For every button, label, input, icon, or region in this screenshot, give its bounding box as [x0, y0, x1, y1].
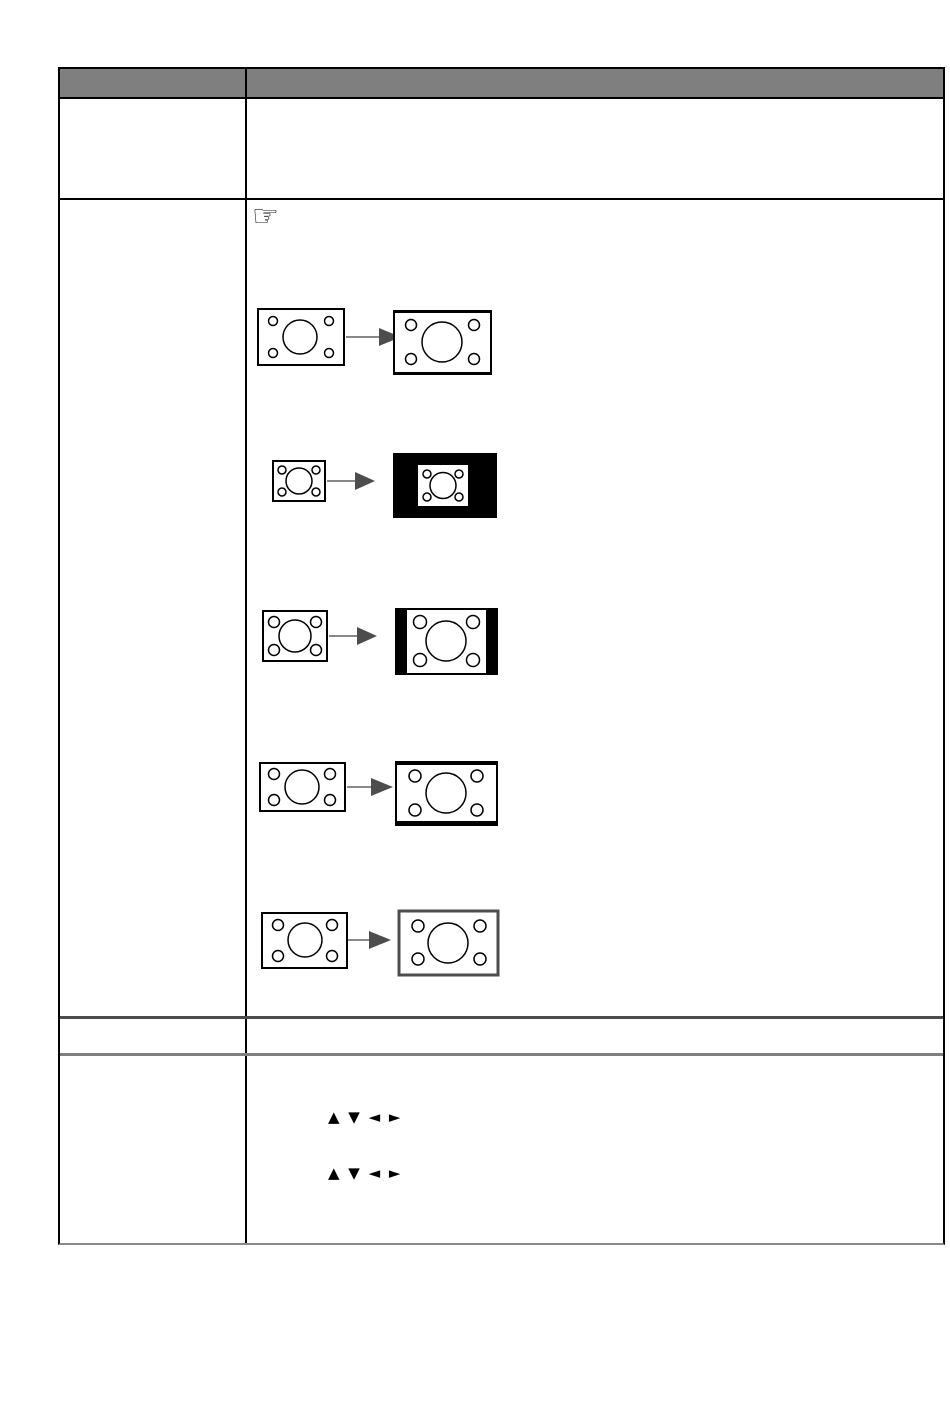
- source-screen: [262, 913, 347, 968]
- source-screen: [260, 763, 345, 811]
- direction-keys-icons-line1: ▲ ▼ ◄ ►: [328, 1108, 402, 1126]
- aspect-diagram-enlarge-letterbox: [255, 301, 495, 379]
- result-screen: [393, 310, 492, 375]
- row2-label-cell: [60, 200, 247, 1016]
- table-row-spacer: [60, 1016, 943, 1053]
- table-row: [60, 97, 943, 198]
- row3-label-cell: [60, 1019, 247, 1053]
- row4-description-cell: ▲ ▼ ◄ ► ▲ ▼ ◄ ►: [247, 1056, 943, 1243]
- settings-table: ☞: [58, 67, 945, 1245]
- transform-arrow-icon: [327, 472, 375, 490]
- source-screen: [263, 611, 327, 661]
- row1-label-cell: [60, 99, 247, 198]
- header-cell-description: [247, 69, 943, 97]
- aspect-diagram-real-black-mask: [255, 446, 503, 524]
- result-screen: [399, 911, 498, 975]
- aspect-diagram-pillarbox: [255, 601, 503, 681]
- aspect-diagram-letterbox: [255, 754, 503, 832]
- transform-arrow-icon: [347, 778, 393, 796]
- pointing-hand-icon: ☞: [252, 202, 279, 232]
- transform-arrow-icon: [329, 627, 377, 645]
- transform-arrow-icon: [346, 328, 401, 346]
- source-screen: [258, 309, 344, 365]
- source-screen: [273, 461, 325, 501]
- result-screen: [395, 761, 498, 826]
- row1-description-cell: [247, 99, 943, 198]
- table-row-keys: ▲ ▼ ◄ ► ▲ ▼ ◄ ►: [60, 1053, 943, 1243]
- result-screen: [395, 608, 498, 675]
- transform-arrow-icon: [348, 931, 391, 949]
- aspect-diagram-stretch: [255, 904, 503, 982]
- header-cell-function: [60, 69, 247, 97]
- row2-description-cell: ☞: [247, 200, 943, 1016]
- row3-description-cell: [247, 1019, 943, 1053]
- result-screen: [393, 453, 497, 518]
- direction-keys-icons-line2: ▲ ▼ ◄ ►: [328, 1164, 402, 1182]
- table-header-row: [60, 69, 943, 97]
- row4-label-cell: [60, 1056, 247, 1243]
- table-row-aspect: ☞: [60, 198, 943, 1016]
